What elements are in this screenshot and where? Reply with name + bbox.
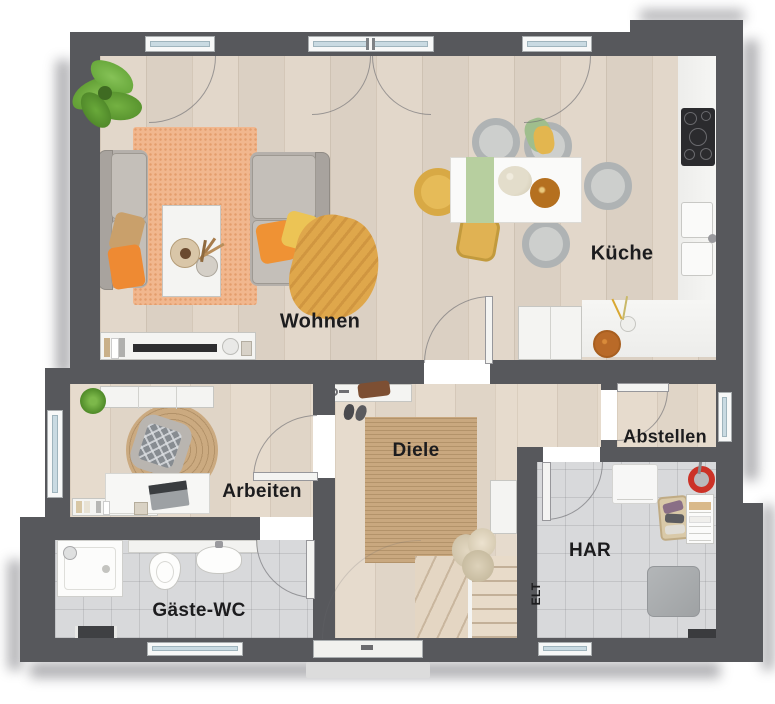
shower-head <box>63 546 77 560</box>
cup <box>180 248 191 259</box>
window-glass <box>543 646 587 651</box>
candles <box>84 501 90 513</box>
candles <box>76 501 82 513</box>
pillow-orange <box>107 244 146 291</box>
room-label-abstellen: Abstellen <box>623 427 707 448</box>
entry-door-handle <box>361 645 373 650</box>
potted-plant-small <box>80 388 106 414</box>
basin-faucet <box>215 541 223 548</box>
elt-cabinet <box>490 480 517 534</box>
window-glass <box>52 415 58 493</box>
entry-step <box>306 662 430 678</box>
fruit-bowl <box>593 330 621 358</box>
wall <box>601 384 617 390</box>
utility-appliance <box>647 566 700 617</box>
window-glass <box>313 41 367 47</box>
room-label-diele: Diele <box>393 440 440 462</box>
books <box>103 501 110 515</box>
table-runner <box>466 157 494 223</box>
window-glass <box>150 41 210 47</box>
office-wall-cabinet <box>100 386 214 408</box>
door-leaf <box>542 462 551 521</box>
burner <box>689 128 707 146</box>
wall <box>313 384 335 415</box>
wall <box>80 360 424 384</box>
mop-bucket <box>688 466 715 493</box>
wall <box>20 517 260 540</box>
kitchen-sink <box>681 202 713 238</box>
floor-plan: Wohnen Küche Arbeiten Diele Gäste-WC Abs… <box>0 0 775 704</box>
shadow <box>762 505 774 670</box>
books <box>96 501 101 513</box>
wall <box>601 440 617 462</box>
wall <box>517 447 537 638</box>
window-glass <box>527 41 587 47</box>
burner <box>684 149 695 160</box>
deco-roll <box>222 338 239 355</box>
room-label-gaeste-wc: Gäste-WC <box>152 600 245 622</box>
table-flowers <box>498 166 532 196</box>
door-leaf <box>253 472 318 481</box>
books <box>104 338 110 357</box>
burner <box>700 148 712 160</box>
room-label-wohnen: Wohnen <box>280 311 360 334</box>
wall <box>490 360 716 384</box>
window-glass <box>722 397 727 437</box>
room-label-arbeiten: Arbeiten <box>222 481 301 503</box>
dining-chair <box>522 220 570 268</box>
kitchen-sink <box>681 242 713 276</box>
door-mat <box>688 629 716 638</box>
shower-drain <box>102 565 110 573</box>
deco-bowl <box>530 178 560 208</box>
dining-chair <box>584 162 632 210</box>
window-glass <box>374 41 428 47</box>
window-glass <box>152 646 238 651</box>
room-label-kueche: Küche <box>591 243 654 266</box>
door-leaf <box>617 383 669 392</box>
wall <box>537 447 543 462</box>
keys <box>339 390 349 393</box>
tv <box>133 344 217 352</box>
washing-machine <box>612 464 658 504</box>
door-handle <box>372 38 375 50</box>
wall <box>716 503 763 662</box>
books <box>119 338 125 357</box>
burner <box>684 112 697 125</box>
wash-basin <box>196 546 242 574</box>
radiator <box>75 626 117 638</box>
laptop <box>148 480 189 510</box>
shadow <box>743 40 758 480</box>
potted-plant <box>66 58 142 132</box>
pampas-plant <box>446 528 502 586</box>
deco-box <box>134 502 148 515</box>
door-leaf <box>485 296 493 364</box>
door-handle <box>366 38 369 50</box>
room-label-har: HAR <box>569 540 611 562</box>
hall-floor-east <box>517 384 601 447</box>
door-leaf <box>306 540 315 599</box>
wall <box>313 478 335 517</box>
deco-item <box>241 341 252 356</box>
books <box>111 338 119 359</box>
tall-cabinet <box>518 306 582 360</box>
burner <box>701 111 711 121</box>
shower <box>57 540 123 597</box>
wall <box>600 447 716 462</box>
room-label-elt: ELT <box>529 583 543 606</box>
drying-rack <box>686 494 714 544</box>
